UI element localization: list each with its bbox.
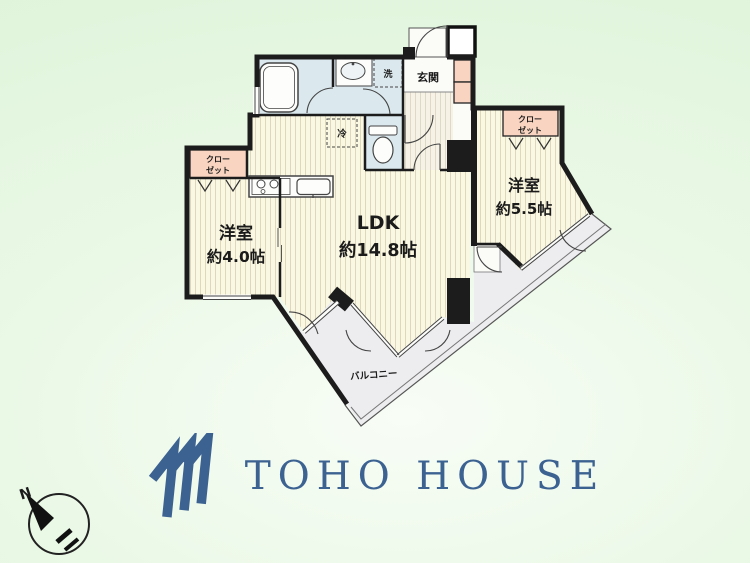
kitchen-sink (297, 179, 330, 195)
wall-block-porch (403, 47, 415, 57)
label-room-left-size: 約4.0帖 (207, 247, 266, 266)
toilet-tank (369, 126, 397, 135)
label-room-left-name: 洋室 (219, 223, 253, 244)
meter-box (448, 27, 475, 56)
label-closet-left-1: クロー (206, 154, 230, 164)
label-washer: 洗 (383, 68, 392, 80)
wall-block-hall (447, 140, 474, 172)
stove-burner-1 (257, 180, 265, 188)
label-ldk-size: 約14.8帖 (339, 240, 418, 261)
label-room-right-name: 洋室 (508, 176, 540, 195)
label-ldk-name: LDK (357, 212, 401, 234)
bathtub (260, 63, 298, 112)
toho-house-logo-mark (145, 433, 225, 519)
label-genkan: 玄関 (417, 70, 439, 84)
label-closet-right-1: クロー (518, 114, 542, 124)
toilet-bowl (373, 137, 393, 163)
toho-house-logo-text: TOHO HOUSE (245, 454, 605, 499)
label-closet-right-2: ゼット (518, 125, 542, 135)
wall-block-ldk-right (447, 278, 470, 324)
shoe-cabinet-top (454, 60, 473, 82)
shoe-cabinet-bottom (454, 82, 473, 103)
page: 玄関 洗 冷 クロー ゼット クロー ゼット 洋室 約4.0帖 LDK 約14.… (0, 0, 750, 563)
room-right-door-area (474, 245, 500, 272)
logo-stripe-1 (152, 452, 173, 517)
compass-stripe-1 (57, 530, 71, 542)
stove-burner-3 (261, 190, 265, 194)
toho-house-logo: TOHO HOUSE (0, 428, 750, 524)
basin-faucet (352, 63, 355, 66)
stove-burner-2 (270, 180, 278, 188)
label-room-right-size: 約5.5帖 (496, 200, 553, 218)
label-fridge: 冷 (337, 128, 347, 140)
label-closet-left-2: ゼット (206, 165, 230, 175)
